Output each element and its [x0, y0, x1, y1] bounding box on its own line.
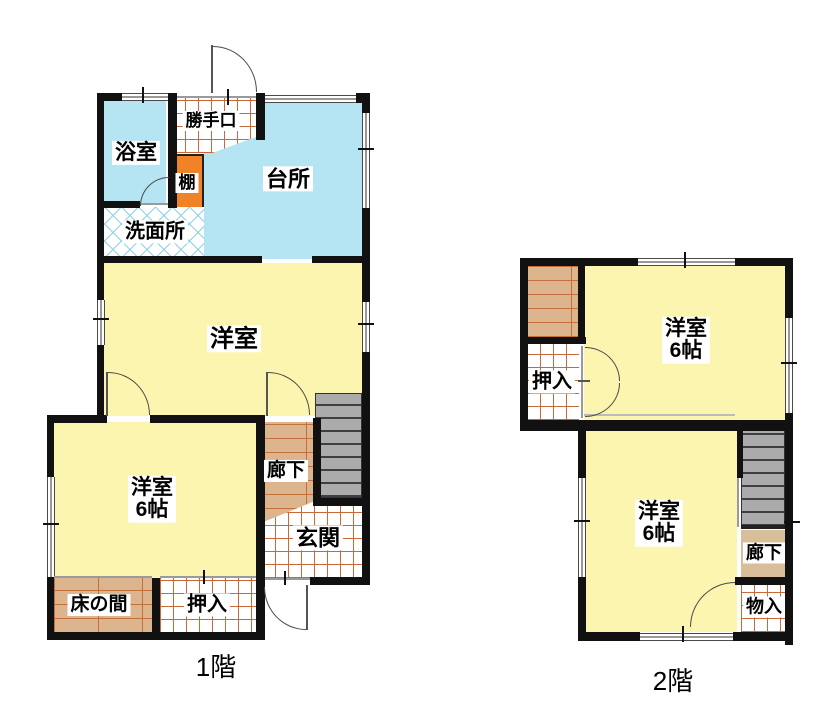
wall-segment: [785, 413, 793, 645]
wall-segment: [785, 258, 793, 318]
threshold: [581, 346, 583, 418]
wall-segment: [152, 578, 160, 633]
window: [122, 93, 168, 101]
stairs-1f: [315, 393, 362, 498]
wall-tick: [284, 571, 286, 585]
room-label-washroom: 洗面所: [122, 220, 188, 243]
wall-tick: [781, 362, 797, 364]
wall-segment: [578, 265, 585, 344]
wall-segment: [356, 93, 370, 103]
window: [785, 318, 793, 413]
wall-segment: [313, 498, 363, 506]
room-label-backdoor: 勝手口: [183, 111, 240, 131]
floor-title-1f: 1階: [193, 653, 239, 683]
wall-segment: [741, 525, 785, 529]
window: [264, 95, 356, 103]
stairs-2f: [741, 428, 785, 527]
wall-segment: [578, 577, 586, 640]
threshold: [737, 478, 739, 527]
threshold: [262, 578, 310, 580]
wall-tick: [684, 252, 686, 268]
threshold: [584, 414, 735, 416]
window: [97, 300, 105, 345]
wall-segment: [578, 431, 586, 478]
room-label-entrance: 玄関: [293, 525, 343, 550]
wall-segment: [520, 420, 792, 431]
wall-segment: [362, 208, 370, 302]
wall-segment: [47, 415, 54, 477]
wall-segment: [313, 418, 321, 500]
wall-segment: [735, 577, 792, 585]
wall-segment: [362, 352, 370, 585]
window: [47, 477, 55, 577]
wall-segment: [735, 258, 792, 266]
room-label-bath: 浴室: [112, 141, 160, 165]
room-label-storage-2f: 物入: [743, 596, 785, 617]
threshold: [160, 576, 257, 578]
door-arc: [213, 46, 257, 92]
wall-segment: [47, 577, 54, 640]
threshold: [54, 576, 152, 578]
wall-tick: [43, 523, 59, 525]
wall-segment: [47, 415, 107, 423]
room-label-corridor-2f: 廊下: [743, 542, 785, 563]
room-label-corridor-1f: 廊下: [264, 460, 308, 482]
wall-tick: [358, 323, 374, 325]
wall-tick: [203, 570, 205, 584]
window: [362, 113, 370, 208]
room-label-bedroom-north-2f: 洋室 6帖: [662, 317, 710, 364]
wall-tick: [93, 318, 109, 320]
wall-tick: [358, 148, 374, 150]
wall-tick: [574, 520, 590, 522]
wall-segment: [97, 203, 104, 300]
room-label-bedroom-south-2f: 洋室 6帖: [635, 500, 683, 547]
room-label-kitchen: 台所: [263, 166, 313, 191]
wall-tick: [784, 521, 800, 523]
wall-segment: [520, 337, 586, 344]
room-label-closet-2f: 押入: [529, 370, 575, 393]
wall-segment: [150, 415, 265, 423]
door-leaf: [578, 380, 590, 382]
wall-segment: [733, 632, 792, 641]
room-label-living-1f: 洋室: [207, 325, 261, 352]
wall-segment: [97, 93, 104, 203]
room-label-shelf: 棚: [176, 173, 199, 193]
wall-tick: [142, 87, 144, 103]
wall-segment: [47, 632, 265, 640]
wall-tick: [682, 626, 684, 642]
floor-plan: 浴室 勝手口 棚 台所 洗面所 洋室 洋室 6帖 廊下 玄関 床の間 押入 1階: [0, 0, 840, 709]
room-label-tokonoma: 床の間: [67, 594, 130, 616]
window: [638, 633, 733, 641]
threshold: [172, 96, 257, 98]
window: [362, 302, 370, 352]
door-arc: [264, 587, 306, 630]
door-leaf: [306, 585, 308, 630]
floor-title-2f: 2階: [650, 667, 696, 697]
room-label-closet-1f: 押入: [184, 593, 230, 616]
wall-segment: [97, 345, 104, 422]
window: [638, 258, 735, 266]
brick-area-2f: [527, 265, 579, 337]
wall-segment: [310, 577, 370, 585]
window: [578, 478, 586, 577]
wall-segment: [737, 428, 743, 478]
wall-segment: [97, 256, 262, 263]
room-label-bedroom-1f: 洋室 6帖: [128, 476, 176, 523]
wall-segment: [256, 415, 265, 640]
wall-segment: [578, 632, 640, 641]
wall-segment: [256, 93, 265, 140]
